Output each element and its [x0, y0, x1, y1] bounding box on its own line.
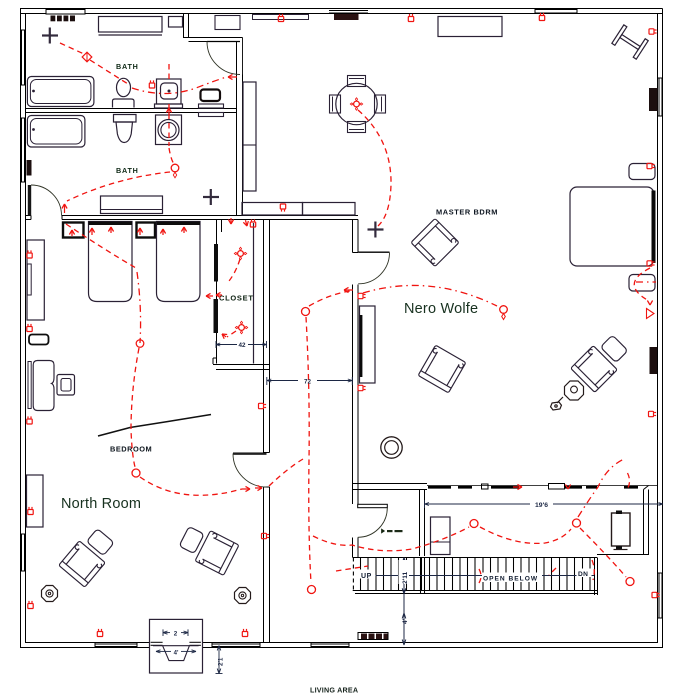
svg-text:BATH: BATH: [116, 62, 139, 71]
svg-text:Nero Wolfe: Nero Wolfe: [404, 301, 478, 317]
svg-text:19'6: 19'6: [535, 502, 548, 509]
svg-text:4': 4': [402, 618, 409, 624]
svg-text:72: 72: [304, 379, 312, 386]
svg-text:BEDROOM: BEDROOM: [110, 445, 152, 454]
svg-text:2'11: 2'11: [402, 571, 409, 584]
svg-text:UP: UP: [361, 573, 372, 580]
svg-text:DN: DN: [578, 571, 588, 578]
svg-text:2: 2: [174, 631, 178, 638]
svg-text:CLOSET: CLOSET: [219, 294, 254, 303]
svg-text:BATH: BATH: [116, 166, 139, 175]
svg-text:North Room: North Room: [61, 496, 141, 512]
svg-text:4': 4': [174, 650, 179, 656]
svg-text:MASTER BDRM: MASTER BDRM: [436, 208, 498, 217]
svg-text:OPEN BELOW: OPEN BELOW: [483, 576, 538, 583]
svg-text:LIVING AREA: LIVING AREA: [310, 686, 358, 695]
svg-text:2'1: 2'1: [217, 657, 224, 666]
svg-text:42: 42: [238, 342, 246, 349]
